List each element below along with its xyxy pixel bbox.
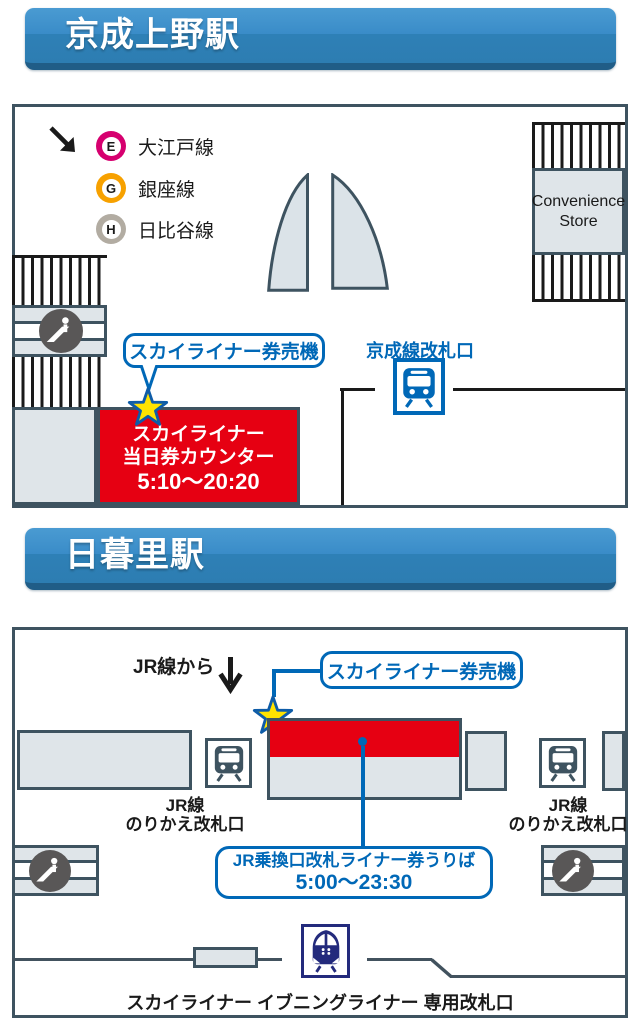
gate-wall bbox=[450, 975, 625, 978]
liner-ticket-counter bbox=[267, 718, 462, 800]
structure-block bbox=[12, 407, 97, 505]
jr-gate-label-line1: JR線 bbox=[110, 796, 260, 815]
stairs-hatch-lower-right bbox=[532, 255, 625, 302]
jr-transfer-gate-train-icon-right bbox=[539, 738, 586, 788]
escalator-icon bbox=[552, 850, 594, 892]
ginza-line-label: 銀座線 bbox=[138, 175, 195, 202]
southeast-arrow-icon bbox=[47, 124, 79, 156]
escalator-icon bbox=[39, 309, 83, 353]
escalator-corridor-right bbox=[541, 845, 625, 896]
stairs-hatch-upper-right bbox=[532, 122, 625, 168]
gate-wall-diagonal bbox=[431, 958, 452, 978]
hibiya-line-label: 日比谷線 bbox=[138, 216, 214, 243]
jr-gate-label-line1: JR線 bbox=[493, 796, 640, 815]
station1-title: 京成上野駅 bbox=[25, 8, 616, 63]
skyliner-counter-hours: 5:10〜20:20 bbox=[100, 469, 297, 495]
gate-wall bbox=[453, 388, 625, 391]
station2-title: 日暮里駅 bbox=[25, 528, 616, 583]
callout-connector bbox=[273, 669, 323, 673]
keisei-ueno-map: E 大江戸線 G 銀座線 H 日比谷線 Convenience Store bbox=[12, 104, 628, 508]
ticket-machine-callout: スカイライナー券売機 bbox=[320, 651, 523, 689]
skyliner-train-icon bbox=[301, 924, 350, 978]
oedo-line-label: 大江戸線 bbox=[138, 133, 214, 160]
oedo-line-badge-icon: E bbox=[96, 131, 126, 161]
jr-transfer-gate-label-left: JR線 のりかえ改札口 bbox=[110, 796, 260, 834]
convenience-store: Convenience Store bbox=[532, 168, 625, 255]
hibiya-line-badge-icon: H bbox=[96, 214, 126, 244]
liner-counter-hours: 5:00〜23:30 bbox=[296, 871, 413, 895]
subway-line-hibiya: H 日比谷線 bbox=[96, 214, 214, 244]
platform-strip-middle bbox=[465, 731, 507, 791]
station2-header-banner: 日暮里駅 bbox=[25, 528, 616, 590]
ticket-machine-callout: スカイライナー券売機 bbox=[123, 333, 325, 368]
hibiya-line-letter: H bbox=[102, 220, 121, 239]
jr-transfer-gate-train-icon-left bbox=[205, 738, 252, 788]
jr-gate-label-line2: のりかえ改札口 bbox=[493, 815, 640, 834]
station-guide-page: 京成上野駅 E 大江戸線 G 銀座線 H 日比谷線 bbox=[0, 0, 640, 1024]
keisei-gate-train-icon bbox=[393, 358, 445, 415]
ticket-machine-callout-text: スカイライナー券売機 bbox=[129, 337, 319, 364]
subway-line-oedo: E 大江戸線 bbox=[96, 131, 214, 161]
nippori-map: JR線から スカイライナー券売機 bbox=[12, 627, 628, 1018]
platform-strip-right bbox=[602, 731, 625, 791]
counter-connector-line bbox=[361, 746, 365, 846]
from-jr-label: JR線から bbox=[133, 652, 214, 679]
escalator-corridor-left bbox=[12, 305, 107, 357]
ticket-machine-callout-text: スカイライナー券売機 bbox=[327, 657, 517, 684]
counter-point-dot bbox=[358, 737, 367, 746]
escalator-corridor-left bbox=[12, 845, 99, 896]
door-leaf-right bbox=[331, 173, 389, 290]
ginza-line-badge-icon: G bbox=[96, 173, 126, 203]
liner-counter-callout: JR乗換口改札ライナー券うりば 5:00〜23:30 bbox=[215, 846, 493, 899]
gate-wall bbox=[12, 958, 193, 961]
gate-wall bbox=[367, 958, 432, 961]
star-marker bbox=[125, 386, 171, 430]
gate-wall bbox=[341, 388, 344, 505]
escalator-icon bbox=[29, 850, 71, 892]
convenience-store-label: Convenience Store bbox=[532, 192, 625, 232]
platform-strip-left bbox=[17, 730, 192, 790]
down-arrow-icon bbox=[217, 655, 244, 696]
exclusive-gate-label: スカイライナー イブニングライナー 専用改札口 bbox=[15, 989, 625, 1015]
liner-counter-label: JR乗換口改札ライナー券うりば bbox=[233, 850, 475, 871]
oedo-line-letter: E bbox=[102, 137, 121, 156]
stairs-hatch-left-upper bbox=[12, 255, 107, 305]
skyliner-counter-line2: 当日券カウンター bbox=[100, 446, 297, 469]
gate-wall bbox=[340, 388, 375, 391]
ginza-line-letter: G bbox=[102, 179, 121, 198]
door-leaf-left bbox=[267, 173, 309, 292]
subway-line-ginza: G 銀座線 bbox=[96, 173, 195, 203]
jr-transfer-gate-label-right: JR線 のりかえ改札口 bbox=[493, 796, 640, 834]
gate-wall bbox=[258, 958, 282, 961]
jr-gate-label-line2: のりかえ改札口 bbox=[110, 815, 260, 834]
gate-box bbox=[193, 947, 258, 968]
stairs-hatch-left-lower bbox=[12, 357, 107, 407]
station1-header-banner: 京成上野駅 bbox=[25, 8, 616, 70]
callout-connector bbox=[272, 669, 276, 697]
